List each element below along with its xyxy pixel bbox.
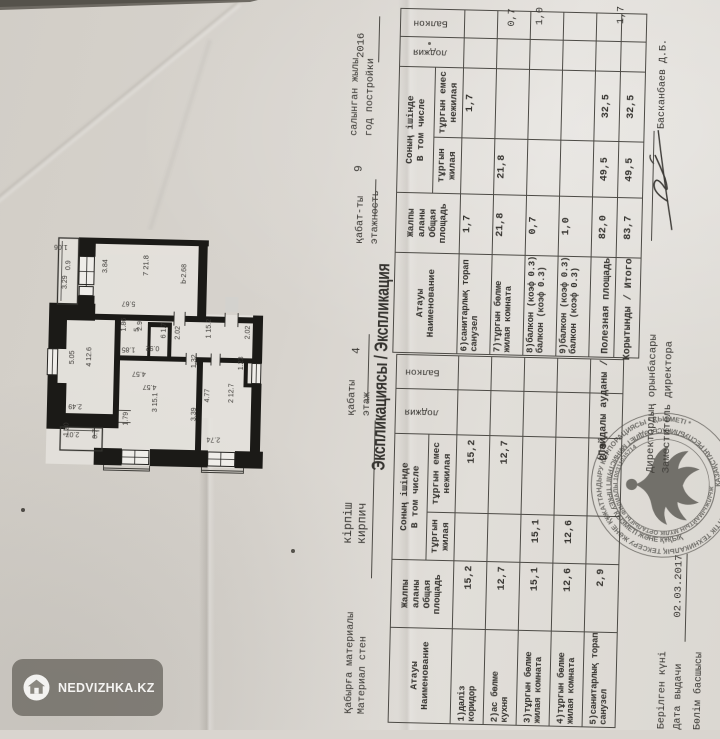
svg-text:2.9: 2.9 bbox=[137, 321, 144, 331]
svg-text:4.57: 4.57 bbox=[143, 383, 157, 390]
svg-text:1.85: 1.85 bbox=[122, 345, 136, 352]
svg-text:4.57: 4.57 bbox=[132, 370, 146, 377]
svg-text:3.39: 3.39 bbox=[191, 407, 198, 421]
svg-text:3.29: 3.29 bbox=[62, 275, 69, 289]
svg-text:2.02: 2.02 bbox=[175, 326, 182, 340]
svg-text:1.06: 1.06 bbox=[54, 243, 68, 250]
svg-text:2.74: 2.74 bbox=[206, 435, 220, 442]
svg-text:1.79: 1.79 bbox=[123, 412, 130, 426]
svg-text:5.67: 5.67 bbox=[122, 299, 136, 306]
svg-text:0.7: 0.7 bbox=[92, 429, 99, 439]
svg-text:6 1.7: 6 1.7 bbox=[161, 323, 168, 339]
svg-text:b-2.68: b-2.68 bbox=[181, 264, 188, 284]
svg-text:1.86: 1.86 bbox=[121, 318, 128, 332]
svg-text:1.32: 1.32 bbox=[191, 354, 198, 368]
svg-text:4 12.6: 4 12.6 bbox=[86, 347, 93, 367]
svg-text:2.07: 2.07 bbox=[65, 430, 79, 437]
svg-text:3.84: 3.84 bbox=[102, 259, 109, 273]
svg-text:1.23: 1.23 bbox=[238, 356, 245, 370]
svg-text:7 21.8: 7 21.8 bbox=[141, 255, 150, 276]
svg-text:4.77: 4.77 bbox=[204, 389, 211, 403]
svg-text:2.49: 2.49 bbox=[68, 402, 82, 409]
svg-text:1 15.2: 1 15.2 bbox=[206, 319, 213, 339]
svg-text:5.05: 5.05 bbox=[69, 350, 76, 364]
svg-text:0.9: 0.9 bbox=[65, 260, 72, 270]
svg-text:2.02: 2.02 bbox=[245, 326, 252, 340]
svg-text:2 12.7: 2 12.7 bbox=[228, 383, 235, 403]
svg-text:0.92: 0.92 bbox=[146, 344, 160, 351]
svg-text:3 15.1: 3 15.1 bbox=[152, 393, 159, 413]
